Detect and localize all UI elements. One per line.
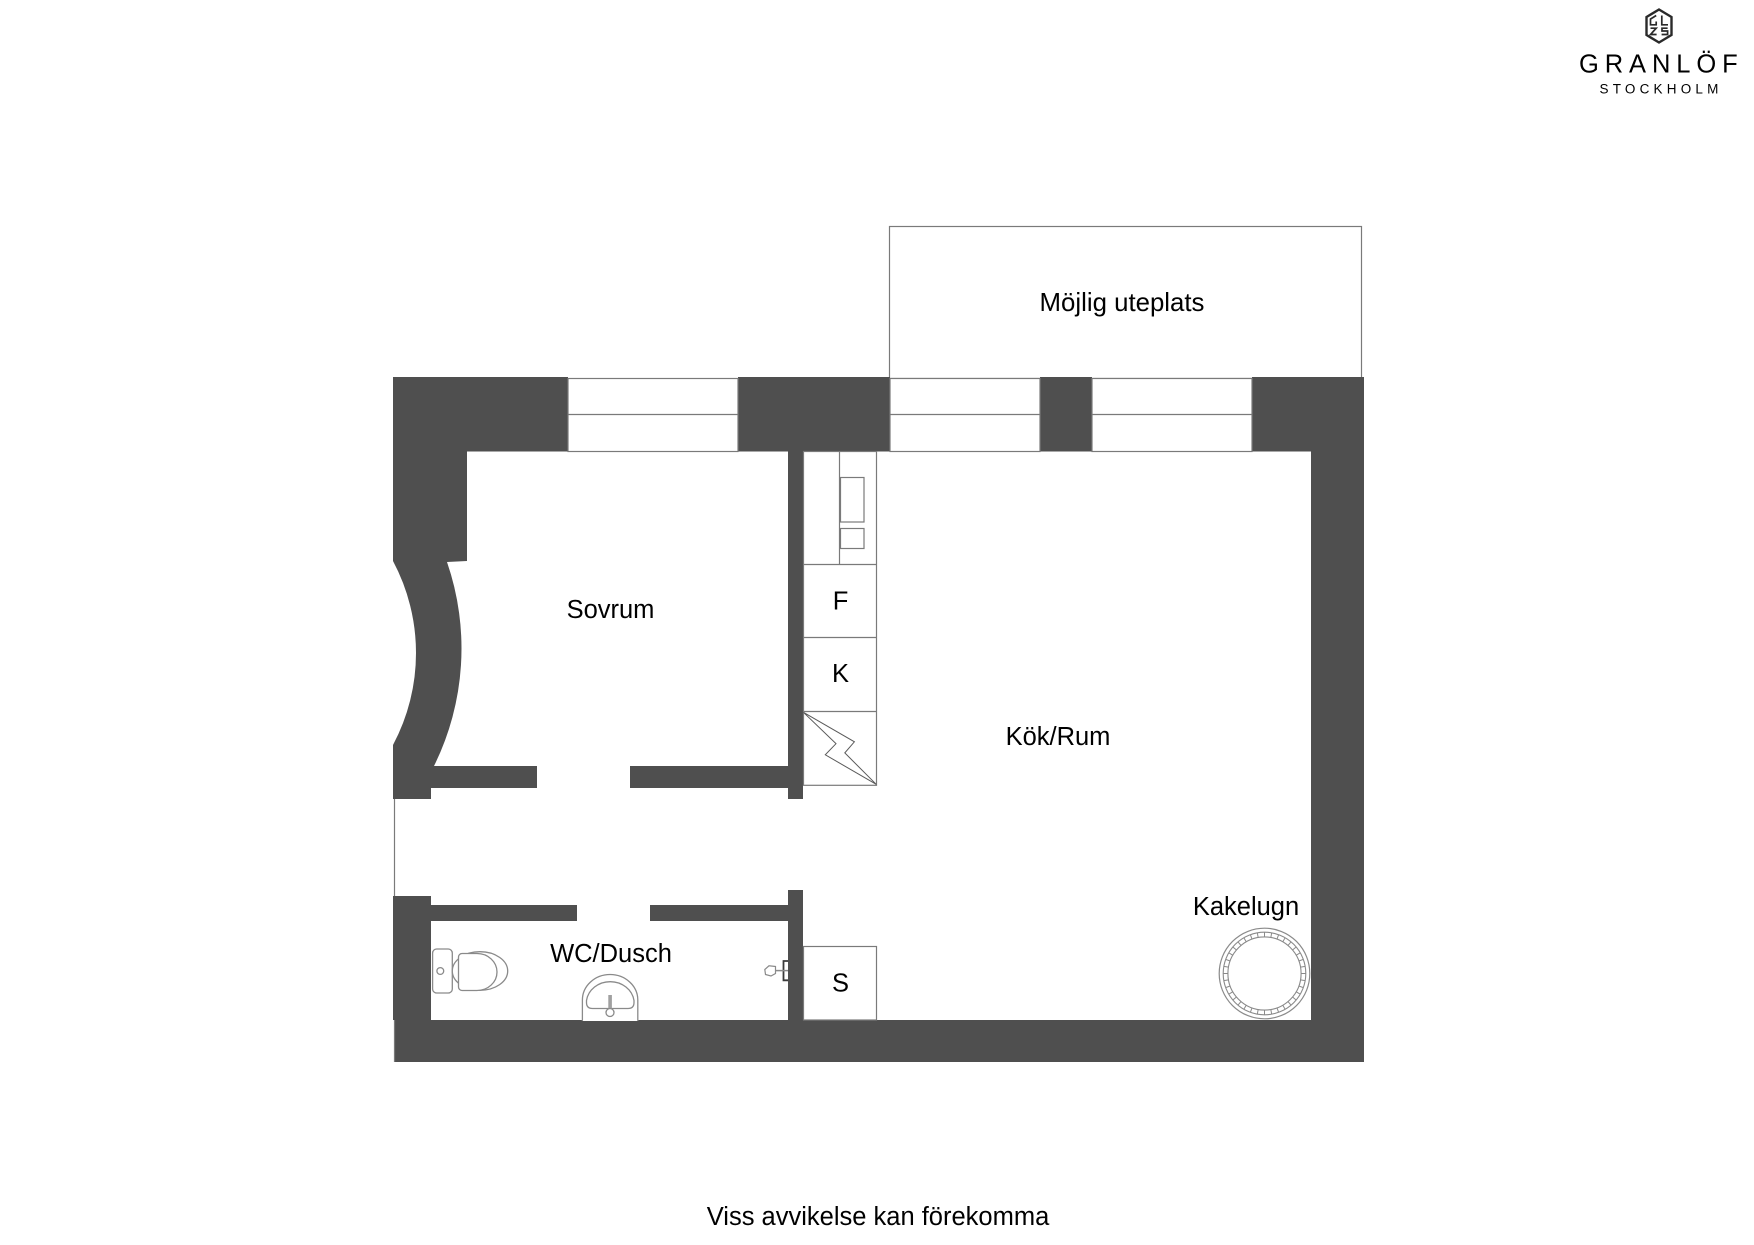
svg-text:STOCKHOLM: STOCKHOLM	[1600, 81, 1723, 96]
svg-text:Sovrum: Sovrum	[567, 596, 655, 624]
svg-text:Möjlig uteplats: Möjlig uteplats	[1040, 289, 1205, 317]
svg-text:WC/Dusch: WC/Dusch	[550, 940, 672, 968]
svg-text:Kök/Rum: Kök/Rum	[1006, 723, 1111, 751]
svg-text:GRANLÖF: GRANLÖF	[1579, 50, 1744, 78]
svg-text:Viss avvikelse kan förekomma: Viss avvikelse kan förekomma	[707, 1203, 1050, 1231]
svg-text:S: S	[832, 970, 849, 998]
svg-text:Kakelugn: Kakelugn	[1193, 893, 1299, 921]
svg-text:F: F	[833, 588, 849, 616]
svg-text:K: K	[832, 660, 849, 688]
